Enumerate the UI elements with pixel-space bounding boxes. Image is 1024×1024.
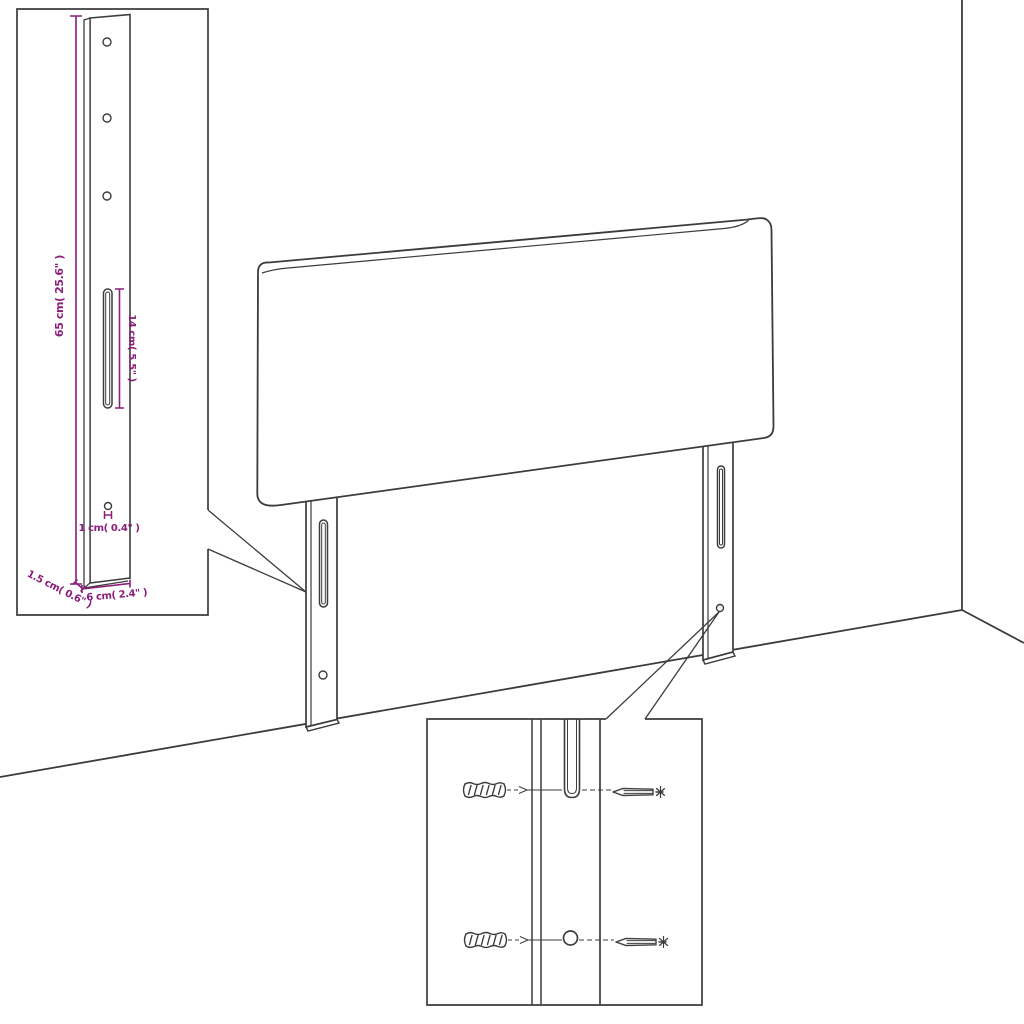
leg-detail-inset: 65 cm( 25.6" ) 14 cm( 5.5" ) 1 cm( 0.4" … — [17, 9, 208, 615]
right-leg-slot — [718, 466, 725, 548]
callout-lines-left — [208, 510, 306, 592]
hardware-detail-inset — [427, 719, 702, 1005]
right-leg-hole — [717, 605, 724, 612]
floor-line-right — [962, 610, 1024, 643]
left-leg-hole — [319, 671, 327, 679]
right-leg — [703, 441, 735, 664]
diagram-page: 65 cm( 25.6" ) 14 cm( 5.5" ) 1 cm( 0.4" … — [0, 0, 1024, 1024]
dim-hole-label: 1 cm( 0.4" ) — [78, 523, 139, 534]
left-leg-slot — [320, 520, 328, 607]
callout-lines-right — [606, 612, 719, 719]
hardware-hole — [564, 931, 578, 945]
left-leg — [306, 497, 339, 732]
headboard-outline — [257, 218, 773, 506]
diagram-canvas: 65 cm( 25.6" ) 14 cm( 5.5" ) 1 cm( 0.4" … — [0, 0, 1024, 1024]
dim-height-label: 65 cm( 25.6" ) — [53, 255, 66, 337]
leg-detail-bracket — [84, 15, 130, 589]
headboard — [257, 218, 773, 506]
dim-slot-label: 14 cm( 5.5" ) — [126, 314, 137, 382]
